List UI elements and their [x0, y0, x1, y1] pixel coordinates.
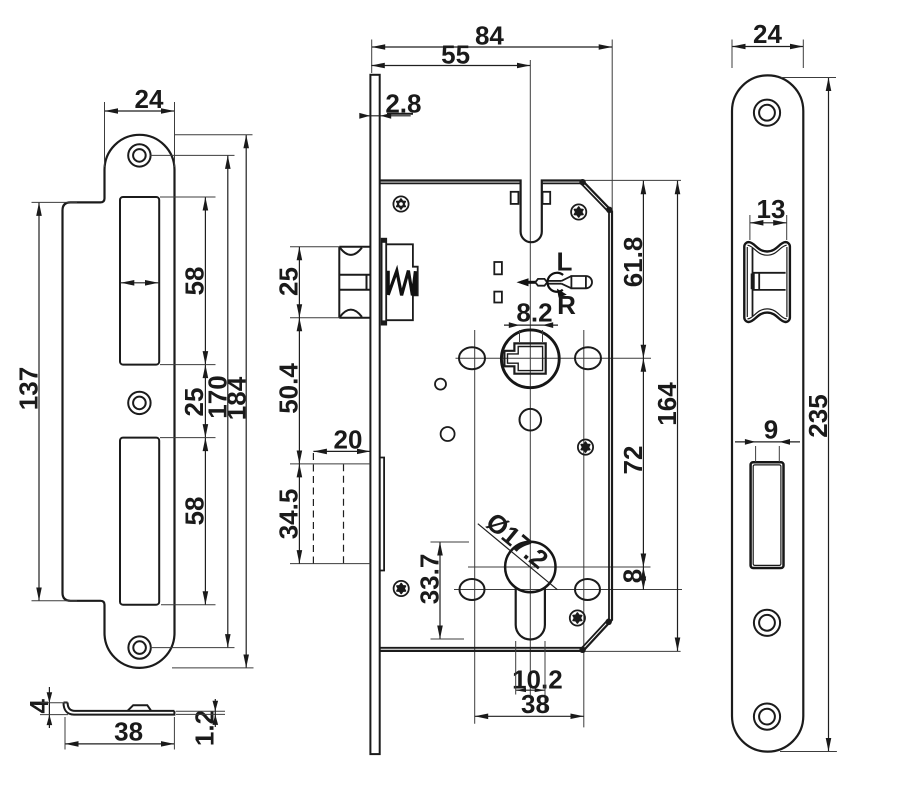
svg-text:84: 84 — [475, 20, 504, 50]
svg-text:8.2: 8.2 — [516, 297, 552, 327]
svg-text:38: 38 — [114, 717, 143, 747]
svg-text:20: 20 — [334, 425, 363, 455]
svg-text:R: R — [557, 290, 576, 320]
svg-text:13: 13 — [757, 194, 786, 224]
svg-text:24: 24 — [135, 84, 164, 114]
svg-text:9: 9 — [764, 415, 778, 445]
svg-text:L: L — [557, 247, 573, 277]
svg-text:24: 24 — [753, 19, 782, 49]
svg-text:38: 38 — [521, 689, 550, 719]
svg-text:184: 184 — [222, 376, 252, 420]
